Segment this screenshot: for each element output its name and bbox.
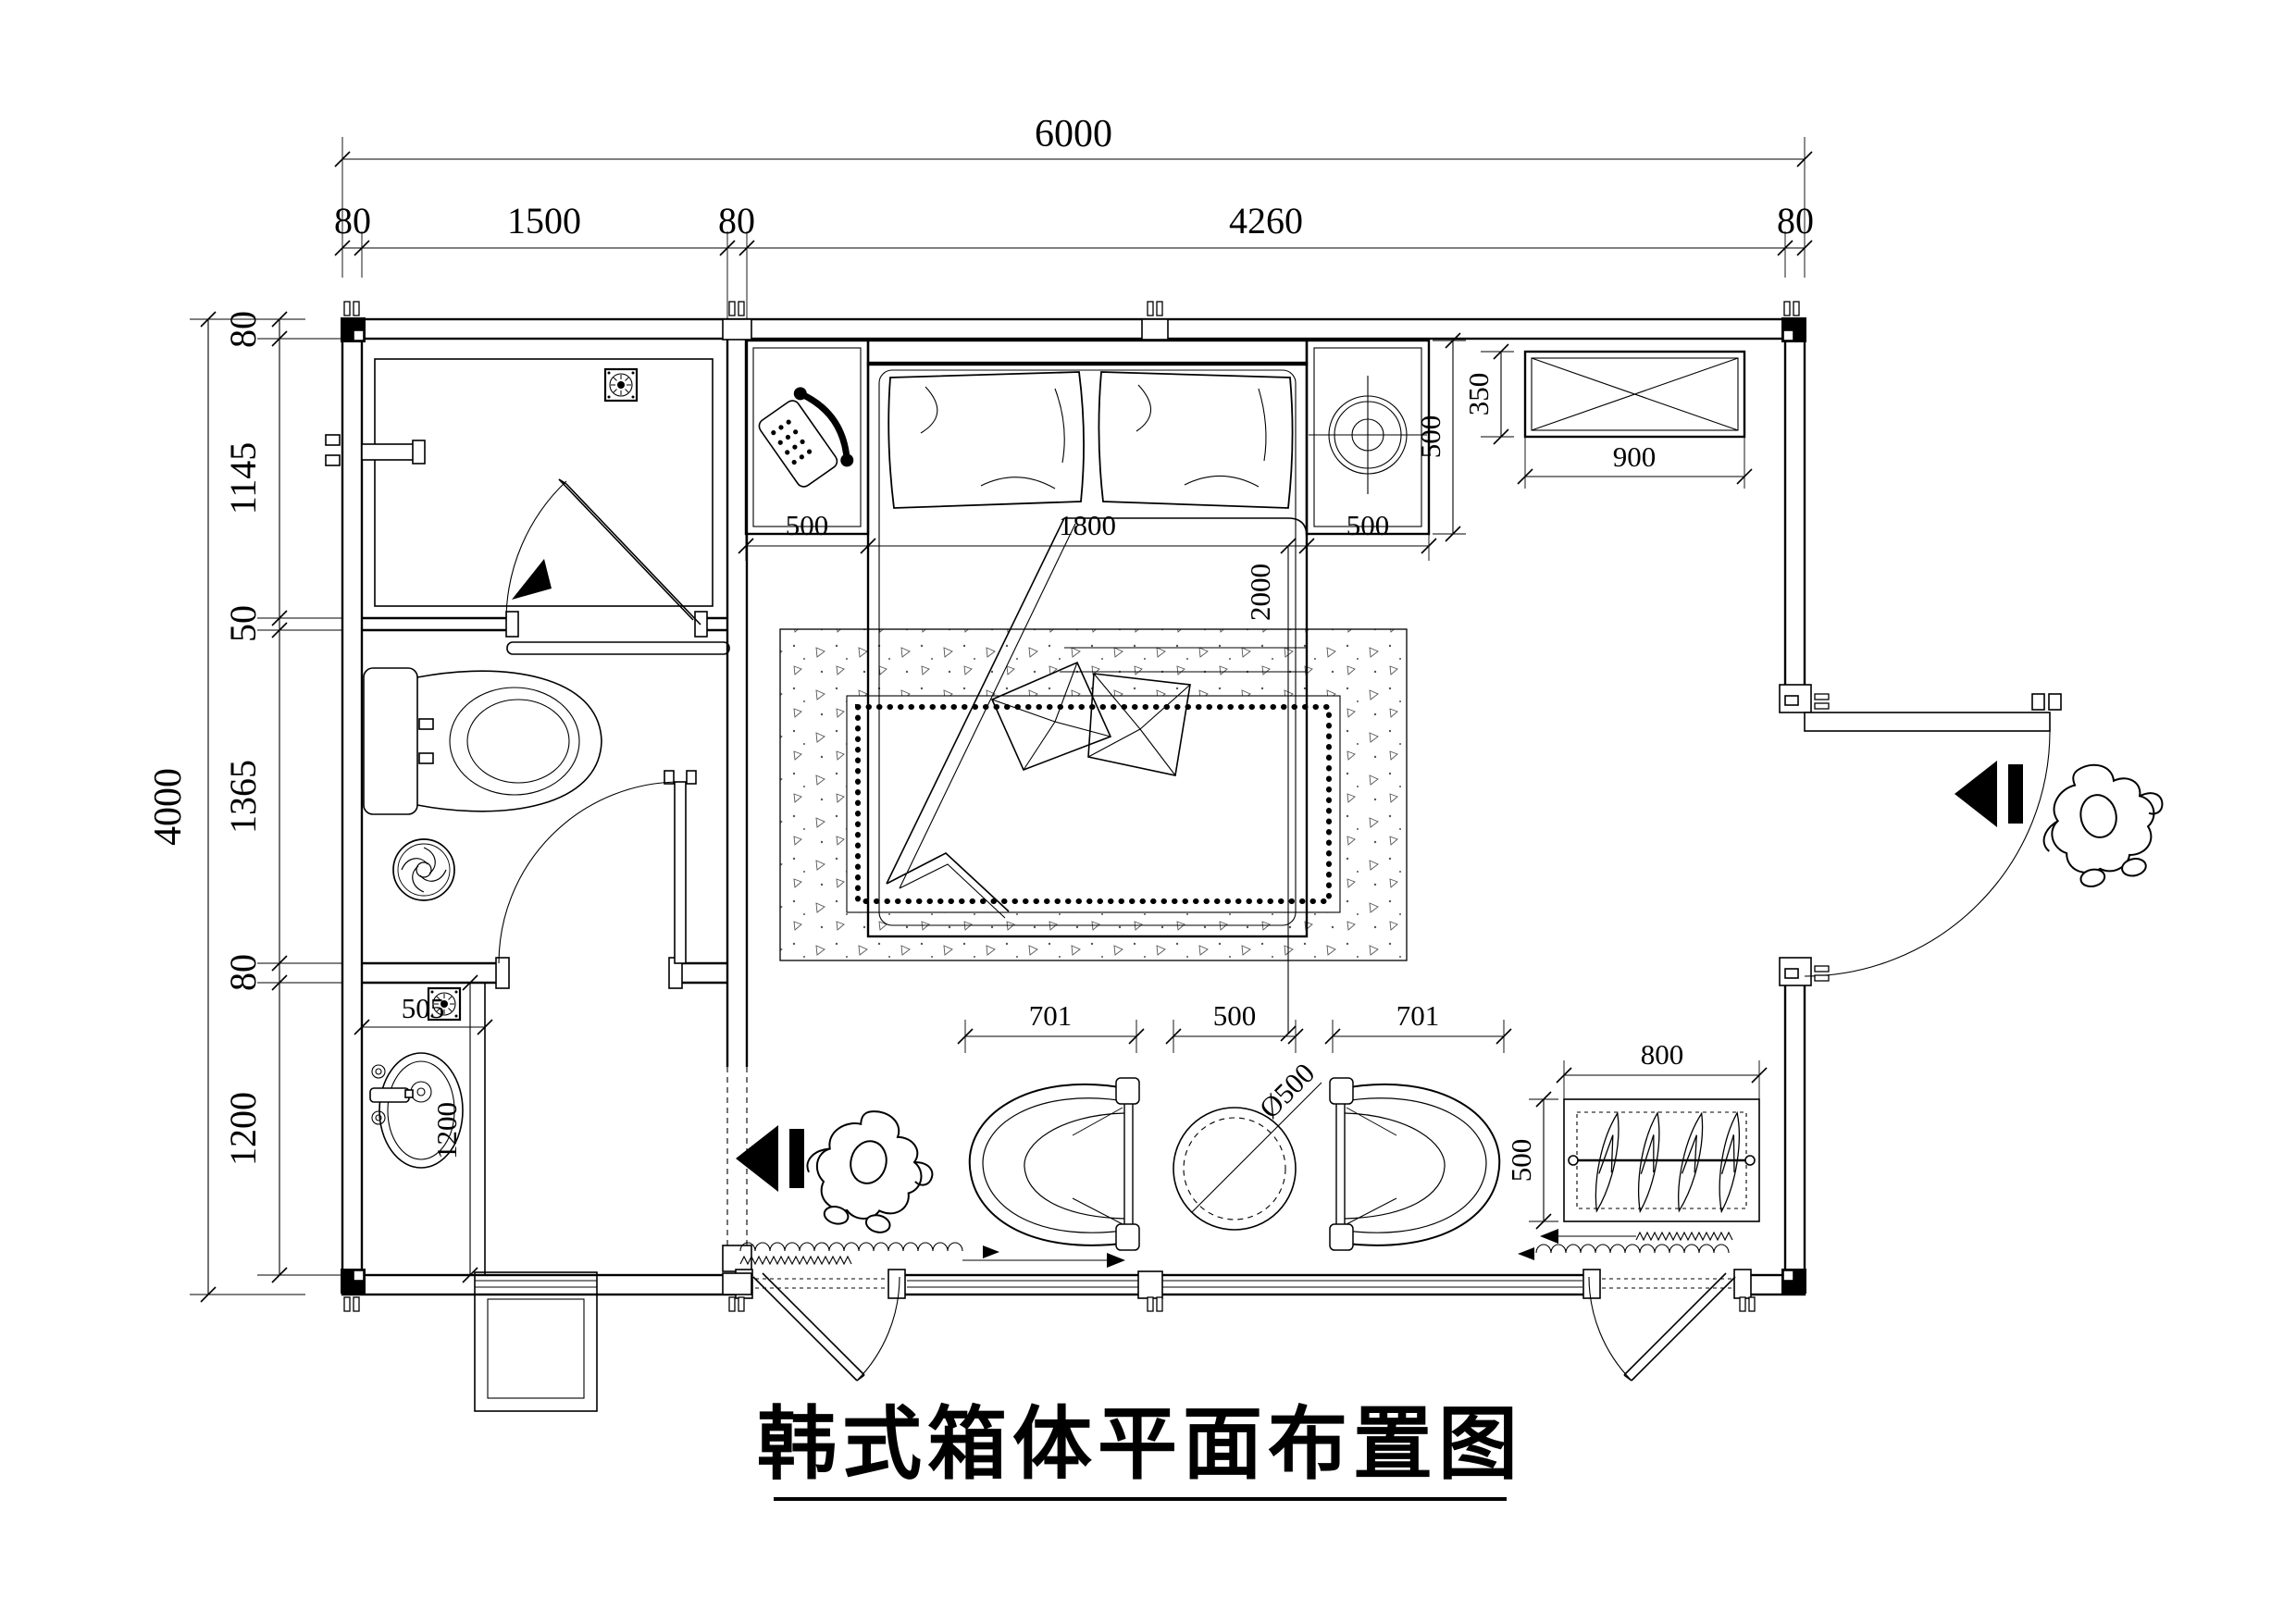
dim-label-1800: 1800 <box>1059 509 1116 541</box>
wardrobe-rack <box>1564 1099 1759 1221</box>
dim-label-l80-b: 80 <box>222 954 264 991</box>
person-figure-bedroom <box>795 1098 944 1244</box>
bath-bedroom-partition-wall <box>723 339 751 1271</box>
dim-label-701-right: 701 <box>1396 999 1440 1032</box>
wall-post <box>723 1245 751 1271</box>
toilet-vanity-partition-wall <box>362 958 727 988</box>
bathroom-door <box>499 771 696 963</box>
dim-label-1200: 1200 <box>222 1092 264 1166</box>
pillow-left <box>888 372 1084 508</box>
nightstand-left <box>746 341 868 534</box>
dim-label-701-left: 701 <box>1029 999 1073 1032</box>
shower-partition-wall <box>362 612 729 654</box>
entry-door-right <box>1780 685 2061 985</box>
clothes-hanger-icon <box>1671 1111 1708 1212</box>
dim-ac-900: 900 <box>1518 437 1752 489</box>
dim-label-50: 50 <box>222 605 264 642</box>
curtain-track-left <box>740 1243 1125 1268</box>
dim-label-1500: 1500 <box>507 200 581 242</box>
window-mullion-post <box>1138 1271 1162 1298</box>
ceiling-lamp-icon <box>1309 376 1427 494</box>
shower-room <box>326 359 713 625</box>
plan-title-text: 韩式箱体平面布置图 <box>757 1400 1523 1489</box>
spiral-drain-icon <box>393 839 454 900</box>
dim-label-1145: 1145 <box>222 442 264 515</box>
dim-label-350: 350 <box>1462 373 1495 416</box>
dim-label-500-right: 500 <box>1347 509 1390 541</box>
telephone-icon <box>752 381 861 496</box>
dim-label-500-table: 500 <box>1213 999 1257 1032</box>
floor-drain-icon <box>605 369 637 401</box>
door-swing-arc <box>499 782 680 963</box>
window-bottom-left <box>475 1281 597 1287</box>
outdoor-unit <box>475 1272 597 1411</box>
dim-label-6000: 6000 <box>1035 113 1112 155</box>
dim-label-4260: 4260 <box>1229 200 1303 242</box>
dim-top-overall: 6000 <box>335 113 1812 278</box>
swing-arrow <box>512 559 552 600</box>
floor-plan-page: 6000 80 1500 80 4260 80 4000 80 <box>0 0 2296 1623</box>
dim-label-500-left: 500 <box>786 509 829 541</box>
dim-label-1365: 1365 <box>222 760 264 834</box>
dim-label-80-a: 80 <box>334 200 371 242</box>
dim-label-800: 800 <box>1641 1038 1684 1071</box>
armchair-left <box>970 1078 1139 1250</box>
round-table: Ø500 <box>1173 1057 1322 1230</box>
insect-screen-zigzag <box>1636 1233 1732 1240</box>
nightstand-right <box>1307 341 1429 534</box>
dim-label-500-nightstand: 500 <box>1414 415 1446 459</box>
dim-label-80-b: 80 <box>718 200 755 242</box>
dim-vanity-505: 505 <box>354 992 492 1042</box>
dim-label-505: 505 <box>402 992 445 1024</box>
toilet-icon <box>364 668 602 814</box>
dim-seating-chain: 701 500 701 <box>958 999 1511 1053</box>
pillow-right <box>1098 372 1292 508</box>
clothes-hanger-icon <box>1714 1111 1744 1212</box>
dim-label-4000: 4000 <box>147 768 190 846</box>
dim-label-500-wardrobe: 500 <box>1505 1139 1537 1183</box>
direction-arrow-entry <box>1955 761 2023 827</box>
armchair-right <box>1330 1078 1499 1250</box>
dim-label-l80-a: 80 <box>222 311 264 348</box>
person-figure-entry <box>2030 752 2177 895</box>
dim-top-chain: 80 1500 80 4260 80 <box>334 200 1814 319</box>
shower-door <box>506 479 701 625</box>
curtain-track-right <box>1518 1229 1732 1260</box>
vanity-room: 505 1200 <box>354 975 492 1282</box>
dim-wardrobe-500: 500 <box>1505 1092 1558 1229</box>
dim-label-80-c: 80 <box>1777 200 1814 242</box>
faucet-icon <box>370 1065 413 1124</box>
door-bottom-right <box>1583 1270 1751 1381</box>
towel-bar <box>507 642 729 654</box>
dim-label-2000: 2000 <box>1244 564 1276 621</box>
dim-wardrobe-800: 800 <box>1557 1038 1767 1103</box>
headboard <box>868 341 1307 365</box>
dim-label-900: 900 <box>1613 440 1657 473</box>
door-leaf <box>675 782 686 963</box>
insect-screen-zigzag <box>740 1257 851 1264</box>
dim-left-chain: 80 1145 50 1365 80 1200 <box>222 311 342 1282</box>
plan-title: 韩式箱体平面布置图 <box>757 1400 1523 1499</box>
toilet-room <box>364 668 696 963</box>
direction-arrow-bedroom <box>736 1125 804 1192</box>
ac-cabinet <box>1525 352 1744 437</box>
door-bottom-left <box>736 1270 905 1381</box>
dim-label-1200-room: 1200 <box>430 1102 463 1159</box>
clothes-hanger-icon <box>1632 1111 1665 1212</box>
floor-plan-svg: 6000 80 1500 80 4260 80 4000 80 <box>0 0 2296 1623</box>
door-leaf <box>1805 712 2050 731</box>
clothes-hanger-icon <box>1589 1111 1625 1212</box>
dim-ac-350: 350 <box>1462 344 1514 444</box>
